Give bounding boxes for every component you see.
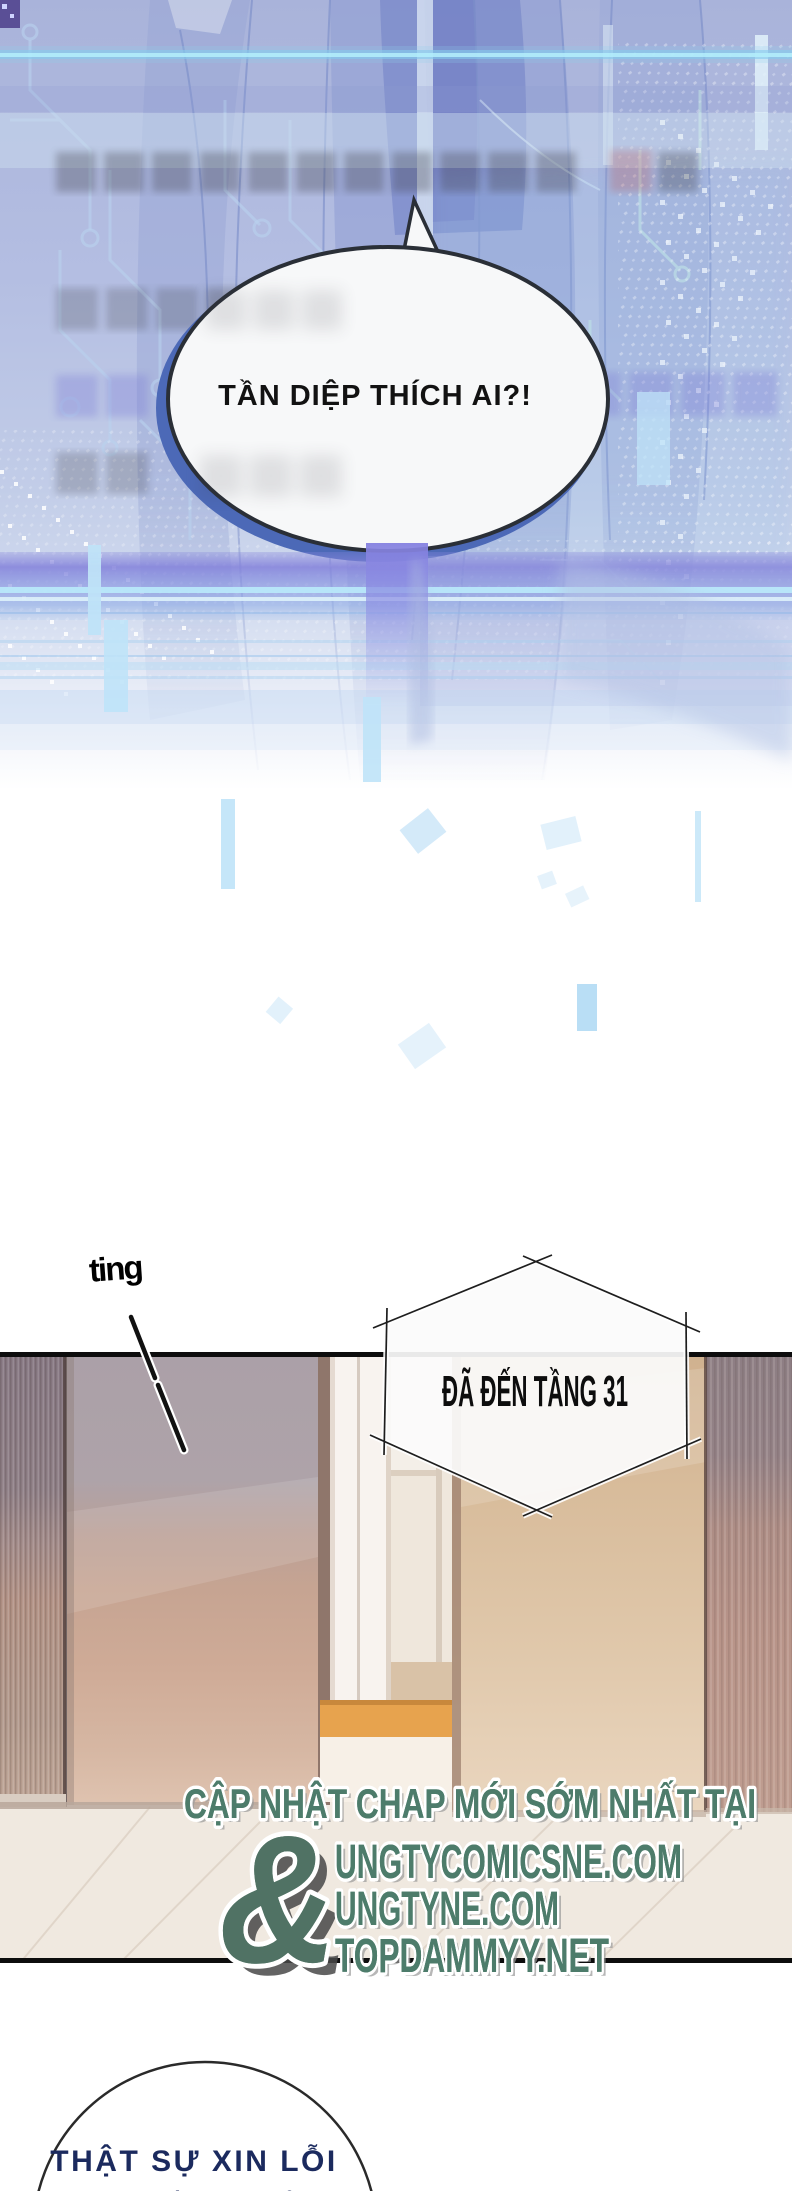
svg-text:ĐÃ ĐẾN TẦNG 31: ĐÃ ĐẾN TẦNG 31 <box>442 1366 628 1416</box>
svg-text:&: & <box>219 1797 337 2001</box>
svg-text:TOPDAMMYY.NET: TOPDAMMYY.NET <box>335 1930 609 1983</box>
svg-text:UNGTYCOMICSNE.COM: UNGTYCOMICSNE.COM <box>335 1836 682 1889</box>
svg-text:THẬT SỰ XIN LỖI: THẬT SỰ XIN LỖI <box>50 2144 337 2178</box>
svg-text:UNGTYNE.COM: UNGTYNE.COM <box>335 1883 559 1936</box>
